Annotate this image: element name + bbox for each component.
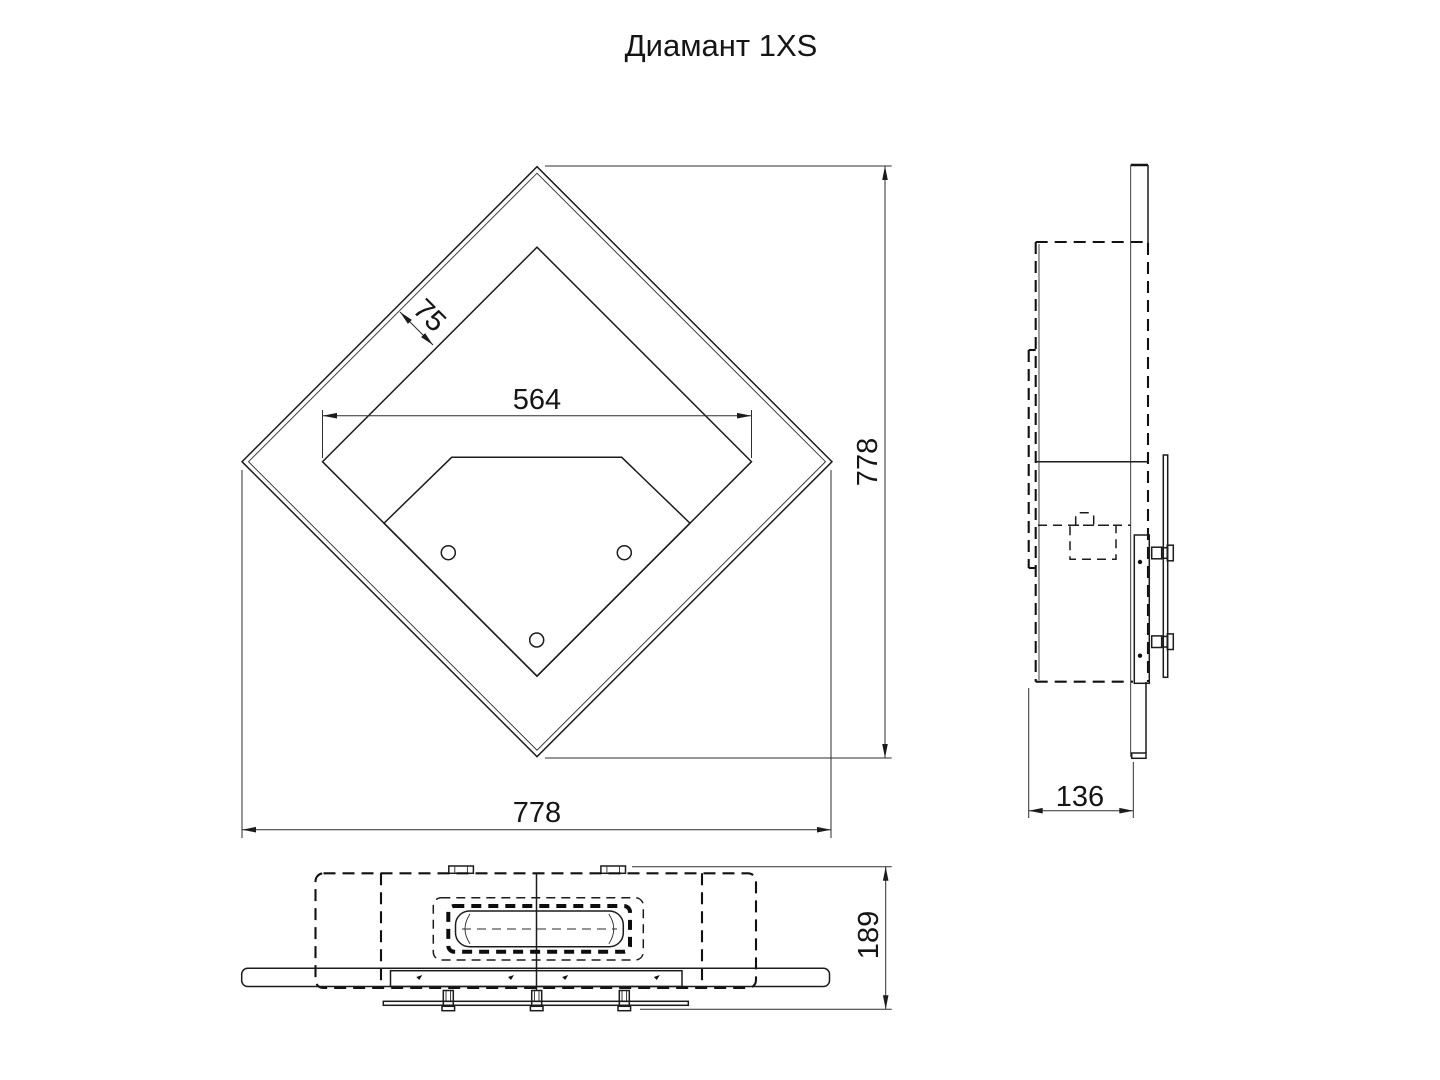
- dim-front-height-label: 778: [852, 438, 884, 486]
- bottom-tab-left: [449, 866, 474, 873]
- front-view: 564 75 778 778: [242, 166, 892, 838]
- dim-front-width: 778: [242, 470, 831, 838]
- bottom-bolt-center: [530, 991, 543, 1011]
- dim-opening-width: 564: [323, 384, 752, 458]
- side-view: 136: [1029, 165, 1174, 818]
- dim-frame-offset: 75: [400, 293, 452, 345]
- front-inner-diamond: [323, 247, 752, 676]
- bottom-tab-right: [601, 866, 626, 873]
- side-bolt-upper: [1152, 545, 1174, 561]
- dim-side-depth-label: 136: [1056, 781, 1104, 813]
- dim-opening-width-label: 564: [513, 384, 561, 416]
- bottom-bracket-screw-2: [508, 975, 514, 980]
- dim-front-width-label: 778: [513, 797, 561, 829]
- side-bracket-screw-lower: [1138, 654, 1142, 658]
- dim-side-depth: 136: [1029, 688, 1134, 818]
- bottom-bracket-screw-3: [562, 975, 568, 980]
- side-bracket-screw-upper: [1138, 560, 1142, 564]
- side-panel-bottom-cap: [1132, 753, 1146, 758]
- drawing-title: Диамант 1XS: [625, 28, 818, 63]
- drawing-sheet: Диамант 1XS 564 75: [0, 0, 1440, 1080]
- technical-drawing: Диамант 1XS 564 75: [0, 0, 1440, 1080]
- bottom-bolt-left: [442, 991, 455, 1011]
- front-bevel-line: [249, 173, 826, 750]
- front-outer-diamond: [242, 167, 832, 757]
- front-hole-bottom: [530, 633, 544, 647]
- side-burner-block: [1070, 525, 1116, 559]
- bottom-burner: [433, 898, 643, 960]
- dim-total-depth-label: 189: [853, 911, 885, 959]
- bottom-bracket-screw-4: [654, 975, 660, 980]
- dim-frame-offset-label: 75: [407, 293, 452, 338]
- front-hole-right: [617, 546, 631, 560]
- side-bolt-lower: [1152, 634, 1174, 650]
- bottom-view: 189: [242, 866, 892, 1011]
- bottom-bolt-right: [618, 991, 631, 1011]
- dim-total-depth: 189: [632, 867, 892, 1010]
- bottom-bracket-screw-1: [416, 975, 422, 980]
- dim-front-height: 778: [545, 166, 892, 758]
- front-hole-left: [441, 546, 455, 560]
- side-burner-tab: [1076, 513, 1094, 526]
